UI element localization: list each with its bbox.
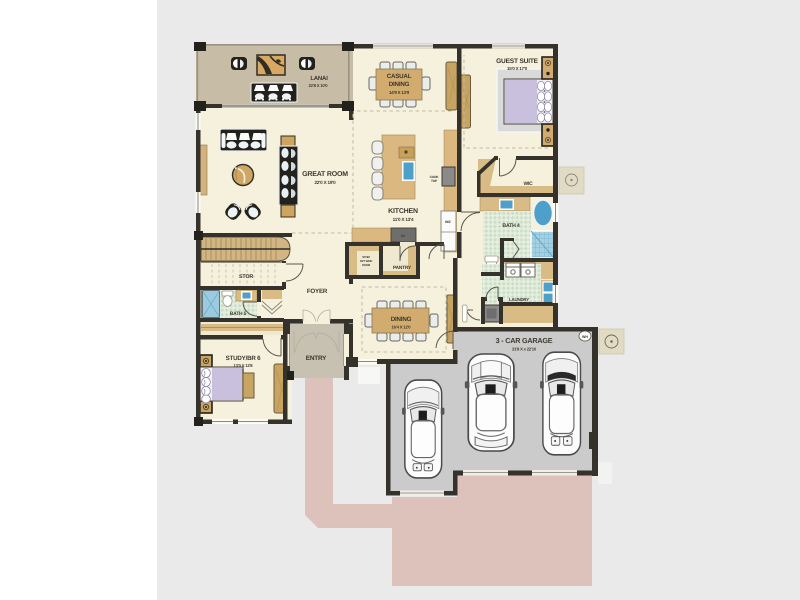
svg-text:16'4 X 12'0: 16'4 X 12'0 — [392, 325, 412, 330]
svg-text:ROOM: ROOM — [362, 263, 371, 267]
svg-text:REF: REF — [445, 220, 451, 224]
svg-text:FOYER: FOYER — [307, 288, 328, 295]
svg-text:31'8 X x 22'10: 31'8 X x 22'10 — [512, 347, 537, 352]
svg-text:22'0 X 19'0: 22'0 X 19'0 — [315, 180, 337, 185]
svg-text:3 - CAR GARAGE: 3 - CAR GARAGE — [496, 336, 553, 345]
svg-text:13'0 X 12'8: 13'0 X 12'8 — [234, 363, 254, 368]
svg-text:11'0 X 13'4: 11'0 X 13'4 — [393, 217, 414, 222]
svg-text:14'9 X 13'9: 14'9 X 13'9 — [389, 90, 410, 95]
svg-text:STOR: STOR — [239, 274, 253, 280]
svg-text:CASUAL: CASUAL — [387, 73, 412, 80]
svg-text:LAUNDRY: LAUNDRY — [509, 297, 529, 302]
svg-text:STUDY/BR 6: STUDY/BR 6 — [226, 355, 262, 362]
svg-text:LANAI: LANAI — [310, 75, 328, 82]
svg-text:GUEST SUITE: GUEST SUITE — [496, 58, 539, 65]
svg-text:BATH 5: BATH 5 — [230, 311, 247, 317]
svg-text:PANTRY: PANTRY — [393, 265, 412, 271]
svg-text:22'8 X 10'0: 22'8 X 10'0 — [309, 83, 329, 88]
svg-text:WIC: WIC — [523, 181, 533, 187]
svg-text:APU: APU — [467, 308, 472, 312]
svg-text:BATH 4: BATH 4 — [502, 223, 519, 229]
svg-text:GREAT ROOM: GREAT ROOM — [302, 171, 348, 178]
svg-text:15'0 X 17'0: 15'0 X 17'0 — [507, 66, 528, 71]
svg-text:DINING: DINING — [389, 81, 410, 88]
svg-text:WH: WH — [582, 335, 588, 339]
svg-text:KITCHEN: KITCHEN — [388, 208, 418, 215]
svg-text:ENTRY: ENTRY — [306, 355, 327, 362]
svg-text:DINING: DINING — [391, 316, 412, 323]
